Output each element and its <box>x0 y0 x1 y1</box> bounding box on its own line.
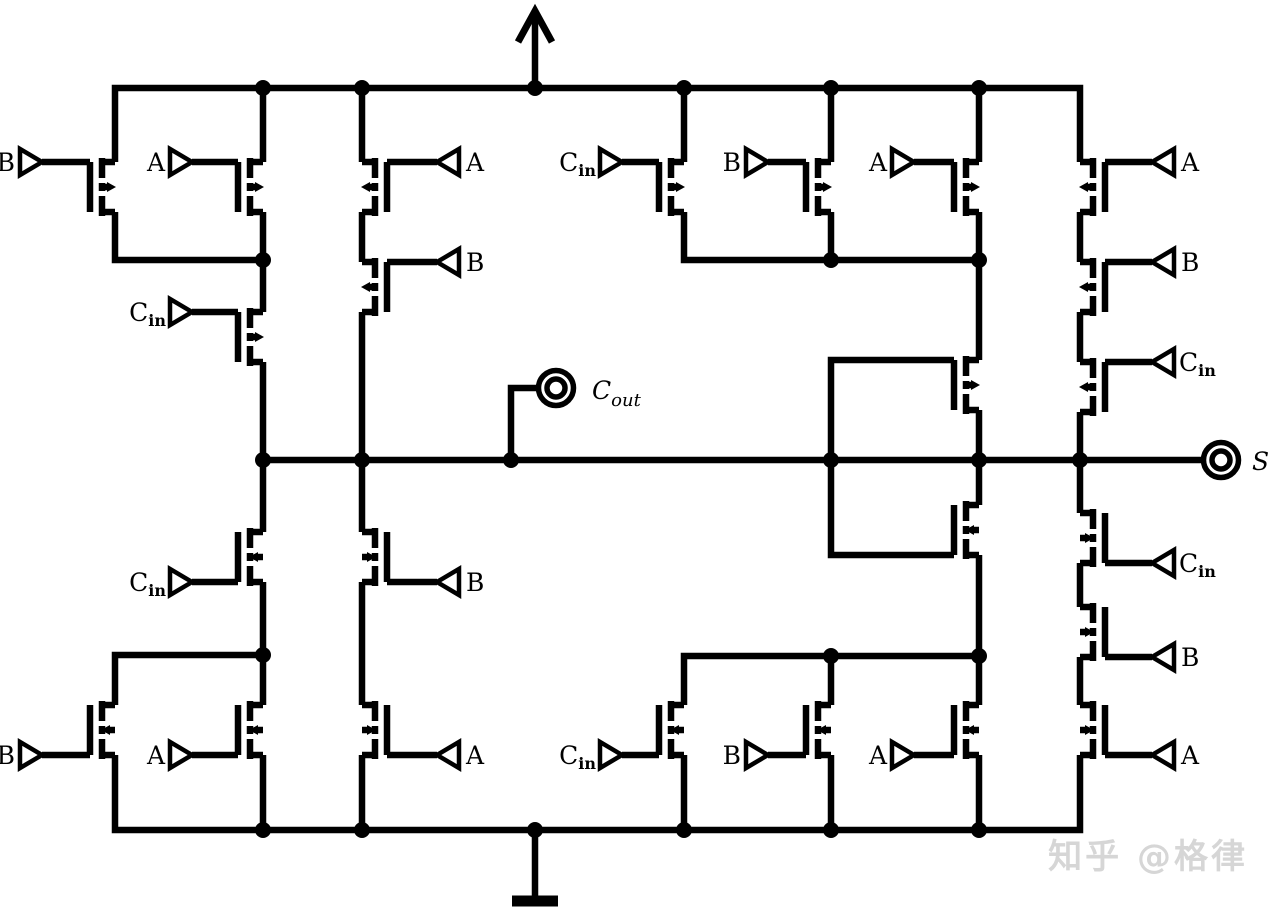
input-pin-cin <box>170 569 192 595</box>
label-cout: Cout <box>592 376 642 411</box>
label-b: B <box>1181 248 1199 277</box>
nmos-b-carry-series <box>362 528 387 586</box>
input-pin-a <box>437 149 459 175</box>
nmos-b-carry-parallel <box>90 701 115 759</box>
label-b: B <box>1181 643 1199 672</box>
nmos-b-sum-parallel <box>806 701 831 759</box>
nmos-cin-carry <box>238 528 263 586</box>
pmos-a-carry-parallel <box>238 158 264 216</box>
pmos-b-carry-parallel <box>90 158 116 216</box>
nmos-cin-sum-series <box>1080 509 1105 567</box>
input-pin-a <box>437 742 459 768</box>
label-a: A <box>868 148 888 177</box>
cout-terminal <box>539 371 574 406</box>
input-pin-cin <box>600 149 622 175</box>
label-a: A <box>1180 741 1200 770</box>
pmos-cin-sum-parallel <box>659 158 685 216</box>
label-cin: Cin <box>559 148 596 180</box>
label-a: A <box>465 741 485 770</box>
pmos-b-carry-series <box>361 258 387 316</box>
nmos-cin-sum-parallel <box>659 701 684 759</box>
label-b: B <box>0 741 15 770</box>
label-s: S <box>1252 447 1269 476</box>
input-pin-b <box>746 742 768 768</box>
input-pin-b <box>437 249 459 275</box>
input-pin-a <box>170 742 192 768</box>
pmos-a-sum-series <box>1079 158 1105 216</box>
schematic-canvas: B A Cin A B Cin B A A B Cin Cin B Cin B … <box>0 0 1280 908</box>
label-cin: Cin <box>1179 549 1216 581</box>
label-cin: Cin <box>559 741 596 773</box>
input-pin-a <box>892 742 914 768</box>
label-b: B <box>466 248 484 277</box>
label-a: A <box>146 148 166 177</box>
nmos-a-carry-parallel <box>238 701 263 759</box>
label-a: A <box>465 148 485 177</box>
input-pin-b <box>20 149 42 175</box>
input-pin-cin <box>1152 550 1174 576</box>
input-pin-a <box>170 149 192 175</box>
label-b: B <box>0 148 15 177</box>
label-cin: Cin <box>129 298 166 330</box>
input-pin-a <box>892 149 914 175</box>
nmos-coutbar-gate <box>954 501 979 559</box>
label-cin: Cin <box>129 568 166 600</box>
label-b: B <box>723 741 741 770</box>
input-pin-cin <box>1152 349 1174 375</box>
pmos-a-sum-parallel <box>954 158 980 216</box>
nmos-a-carry-series <box>362 701 387 759</box>
pmos-b-sum-series <box>1079 258 1105 316</box>
label-cin: Cin <box>1179 348 1216 380</box>
input-pin-a <box>1152 149 1174 175</box>
input-pin-b <box>20 742 42 768</box>
label-b: B <box>466 568 484 597</box>
pmos-cin-sum-series <box>1079 358 1105 416</box>
label-a: A <box>146 741 166 770</box>
label-a: A <box>1180 148 1200 177</box>
watermark: 知乎 @格律 知乎 @格律 <box>1048 837 1250 879</box>
input-pin-b <box>1152 644 1174 670</box>
input-pin-cin <box>170 299 192 325</box>
input-pin-b <box>746 149 768 175</box>
nmos-a-sum-series <box>1080 701 1105 759</box>
pmos-coutbar-gate <box>954 356 980 414</box>
label-b: B <box>723 148 741 177</box>
label-a: A <box>868 741 888 770</box>
pmos-a-carry-series <box>361 158 387 216</box>
input-pin-b <box>437 569 459 595</box>
wire-network <box>42 14 1203 897</box>
nmos-b-sum-series <box>1080 603 1105 661</box>
input-pin-cin <box>600 742 622 768</box>
s-terminal <box>1204 443 1239 478</box>
input-pin-b <box>1152 249 1174 275</box>
pmos-cin-carry <box>238 308 264 366</box>
svg-text:知乎 @格律: 知乎 @格律 <box>1048 837 1248 877</box>
input-pin-a <box>1152 742 1174 768</box>
cmos-full-adder-schematic: B A Cin A B Cin B A A B Cin Cin B Cin B … <box>0 0 1280 908</box>
nmos-a-sum-parallel <box>954 701 979 759</box>
pmos-b-sum-parallel <box>806 158 832 216</box>
